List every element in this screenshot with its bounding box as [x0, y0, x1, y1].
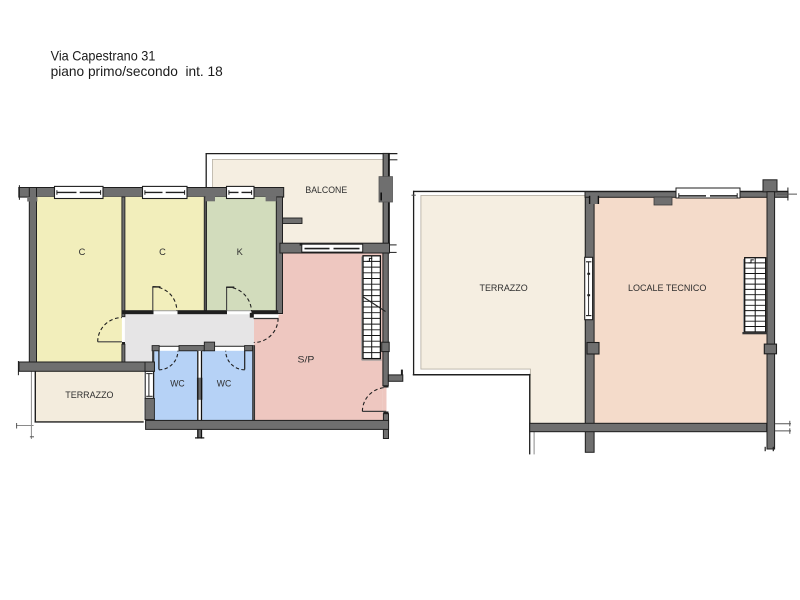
- svg-text:C: C: [79, 247, 86, 257]
- svg-text:BALCONE: BALCONE: [305, 185, 347, 195]
- svg-text:C: C: [159, 247, 166, 257]
- svg-text:K: K: [237, 247, 244, 257]
- svg-text:LOCALE TECNICO: LOCALE TECNICO: [628, 283, 706, 293]
- svg-text:TERRAZZO: TERRAZZO: [65, 390, 113, 400]
- svg-text:WC: WC: [170, 378, 185, 388]
- svg-text:S/P: S/P: [298, 354, 315, 364]
- svg-text:WC: WC: [217, 378, 232, 388]
- svg-text:TERRAZZO: TERRAZZO: [480, 283, 528, 293]
- svg-text:piano primo/secondo int. 18: piano primo/secondo int. 18: [51, 63, 223, 79]
- svg-text:Via Capestrano 31: Via Capestrano 31: [51, 47, 156, 63]
